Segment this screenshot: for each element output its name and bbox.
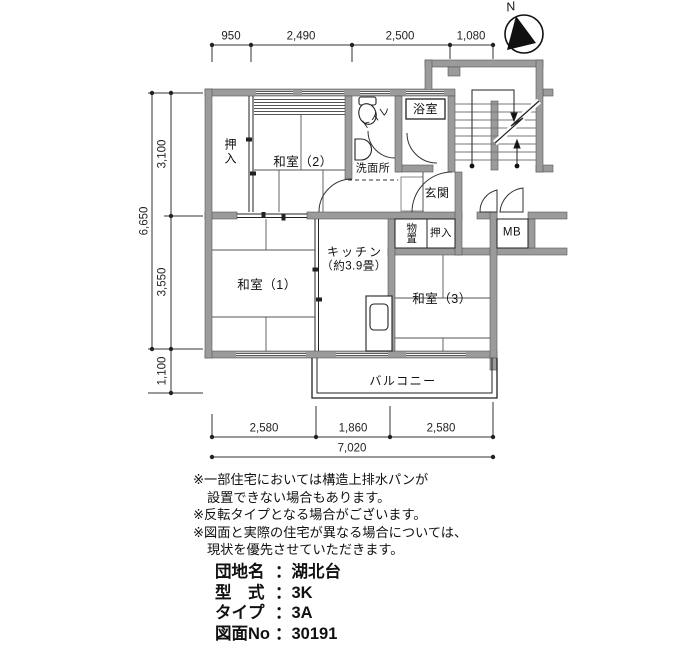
note-line: 設置できない場合もあります。: [193, 489, 467, 507]
north-arrow-icon: [505, 15, 543, 53]
room-label-bathroom: 浴室: [413, 103, 438, 115]
room-label-closet-middle: 押入: [430, 228, 452, 239]
room-label-kitchen-size: （約3.9畳）: [321, 261, 387, 273]
dim-bottom-1: 1,860: [339, 423, 368, 435]
notes-block: ※一部住宅においては構造上排水パンが 設置できない場合もあります。 ※反転タイプ…: [193, 471, 467, 559]
info-row-zumen-no: 図面No：30191: [215, 624, 341, 645]
stair-break-symbol: [495, 101, 539, 143]
room-label-japanese-room-3: 和室（3）: [412, 293, 471, 306]
dim-top-2: 2,500: [386, 31, 415, 43]
info-row-danchi: 団地名：湖北台: [215, 562, 341, 583]
room-label-balcony: バルコニー: [369, 375, 436, 387]
info-label: 団地名: [215, 562, 275, 583]
info-separator: ：: [275, 584, 292, 602]
info-value: 30191: [292, 625, 338, 643]
info-value: 湖北台: [292, 563, 342, 581]
property-info-block: 団地名：湖北台 型 式：3K タイプ：3A 図面No：30191: [215, 562, 341, 644]
room-label-storage: 物置: [406, 223, 417, 244]
dim-left-total: 6,650: [139, 207, 151, 236]
room-label-kitchen: キッチン: [327, 246, 383, 258]
room-label-entrance: 玄関: [424, 187, 449, 199]
dim-top-0: 950: [221, 31, 240, 43]
note-line: ※一部住宅においては構造上排水パンが: [193, 471, 467, 489]
note-line: ※図面と実際の住宅が異なる場合については、: [193, 524, 467, 542]
info-label: タイプ: [215, 603, 275, 624]
washbasin-fixture: [355, 139, 372, 160]
dim-bottom-total: 7,020: [338, 443, 367, 455]
info-separator: ：: [275, 563, 292, 581]
dim-top-3: 1,080: [457, 31, 486, 43]
info-value: 3A: [292, 604, 313, 622]
info-label: 型 式: [215, 583, 275, 604]
floor-plan-document: N 950 2,490 2,500 1,080 6,650 3,100 3,55…: [0, 0, 700, 650]
info-row-katashiki: 型 式：3K: [215, 583, 341, 604]
north-label: N: [505, 0, 517, 14]
room-label-washroom: 洗面所: [356, 164, 391, 175]
room-label-japanese-room-2: 和室（2）: [273, 156, 332, 169]
room-label-closet-left: 押入: [224, 138, 236, 166]
room-label-meter-box: MB: [503, 227, 521, 239]
info-separator: ：: [275, 604, 292, 622]
note-line: ※反転タイプとなる場合がございます。: [193, 506, 467, 524]
info-row-type: タイプ：3A: [215, 603, 341, 624]
dim-left-2: 1,100: [157, 357, 169, 386]
dim-top-1: 2,490: [287, 31, 316, 43]
dim-bottom-0: 2,580: [250, 423, 279, 435]
note-line: 現状を優先させていただきます。: [193, 541, 467, 559]
dim-left-0: 3,100: [157, 140, 169, 169]
dim-left-1: 3,550: [157, 268, 169, 297]
info-separator: ：: [275, 625, 292, 643]
info-value: 3K: [292, 584, 313, 602]
info-label: 図面No: [215, 624, 275, 645]
room-label-japanese-room-1: 和室（1）: [237, 279, 296, 292]
kitchen-sink-counter: [366, 296, 392, 351]
dim-bottom-2: 2,580: [427, 423, 456, 435]
sliding-partitions: [237, 96, 322, 351]
